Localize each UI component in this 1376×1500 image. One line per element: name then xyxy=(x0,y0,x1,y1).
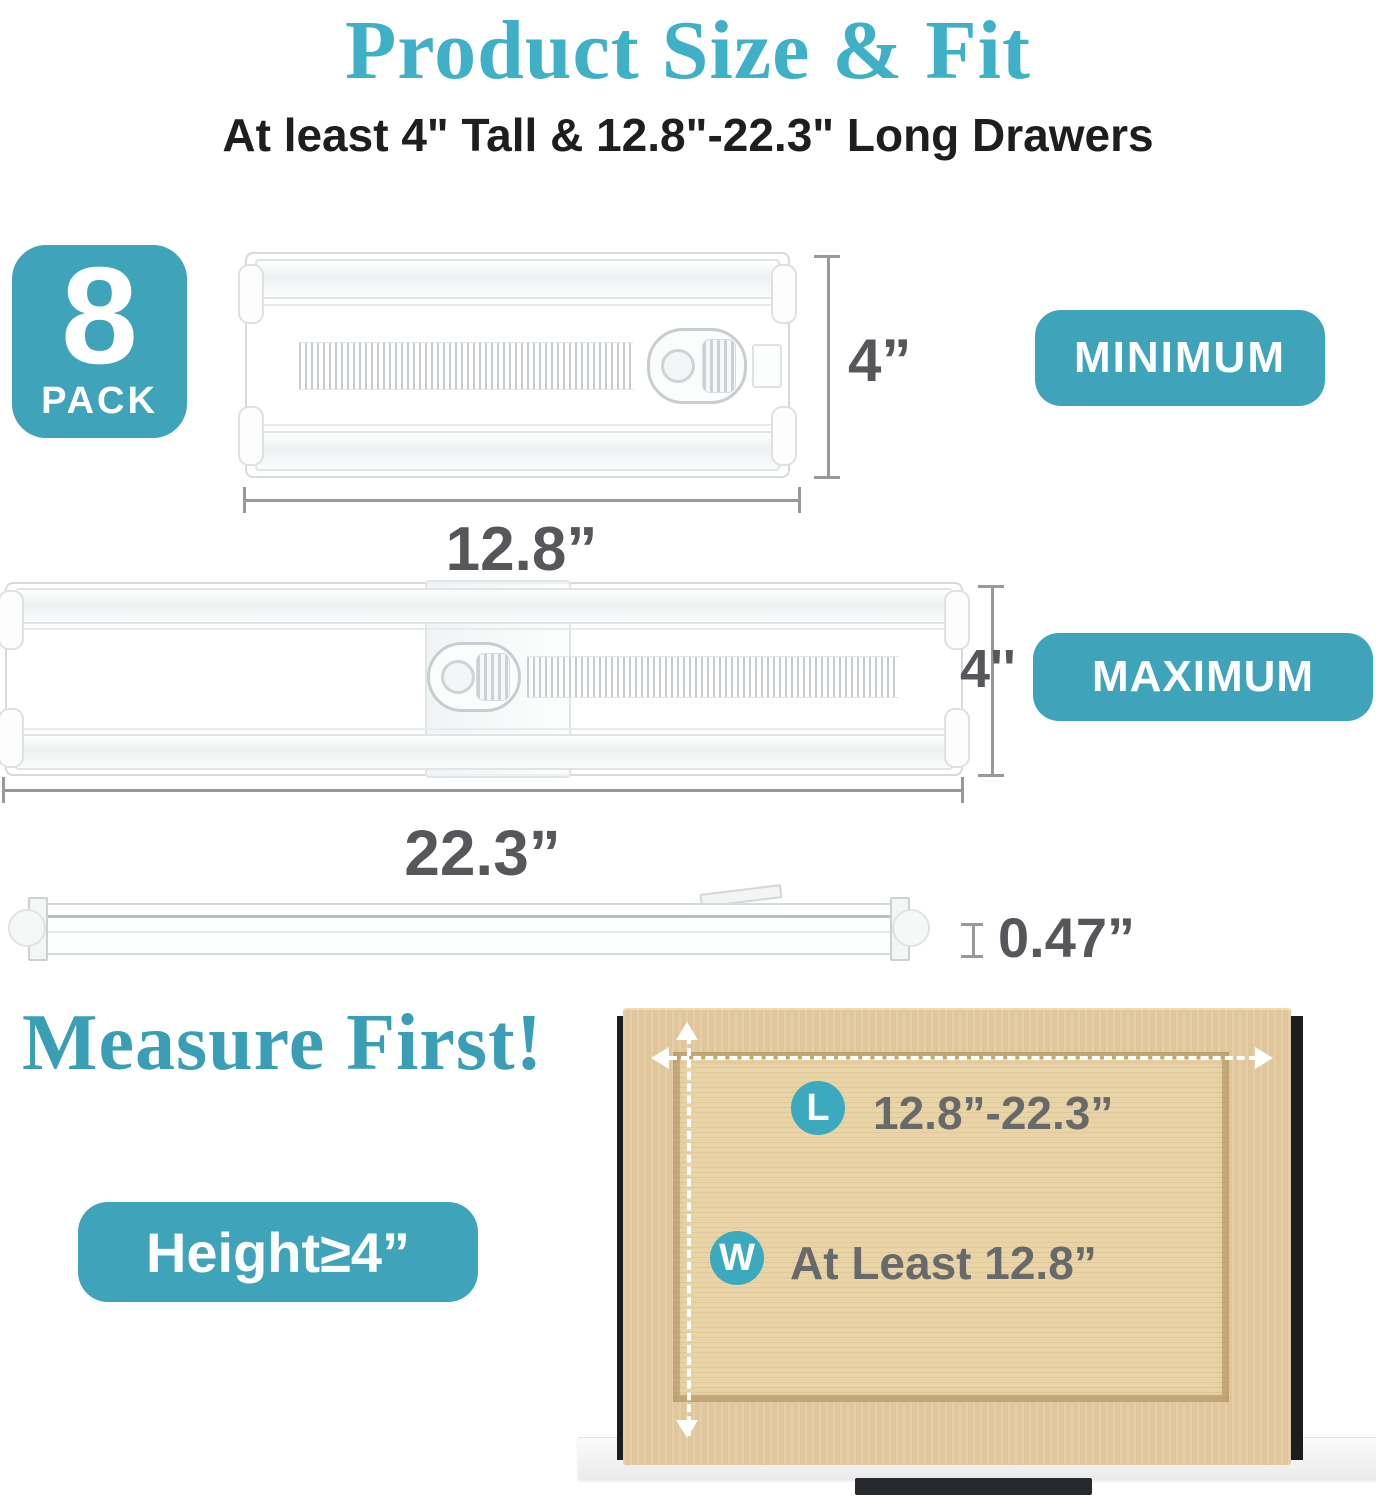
dimension-line-width-min xyxy=(243,499,800,502)
profile-right-cap xyxy=(892,909,930,947)
pack-label: PACK xyxy=(41,380,158,423)
dimension-line-thickness xyxy=(972,924,975,956)
lock-knob xyxy=(661,349,695,383)
divider-ratchet-strip xyxy=(527,656,899,698)
divider-line xyxy=(17,728,951,730)
width-measure-arrow xyxy=(687,1036,691,1436)
dimension-tick xyxy=(978,585,1004,588)
divider-end-cap xyxy=(944,708,970,768)
divider-top-rail xyxy=(255,259,780,299)
dimension-line-height-min xyxy=(827,256,830,477)
divider-bottom-rail xyxy=(255,431,780,471)
minimum-badge: MINIMUM xyxy=(1035,310,1325,406)
arrow-left-icon xyxy=(651,1047,669,1069)
arrow-down-icon xyxy=(676,1420,698,1438)
thickness-label: 0.47” xyxy=(998,905,1135,970)
dimension-tick xyxy=(961,923,983,926)
profile-soft-line xyxy=(40,931,898,933)
height-max-label: 4'' xyxy=(960,638,1016,700)
lock-knob xyxy=(441,660,475,694)
dimension-tick xyxy=(2,777,5,803)
profile-edge-line xyxy=(40,915,898,918)
width-min-label: 12.8” xyxy=(243,514,800,585)
divider-collapsed-illustration xyxy=(245,252,790,478)
lock-grip xyxy=(476,653,510,701)
dimension-tick xyxy=(243,487,246,513)
divider-profile-illustration xyxy=(10,897,928,959)
profile-left-cap xyxy=(8,909,46,947)
divider-lock xyxy=(647,328,747,404)
pack-count-badge: 8 PACK xyxy=(12,245,187,438)
divider-ratchet-strip xyxy=(299,342,634,390)
drawer-slide-right xyxy=(1290,1016,1303,1460)
divider-end-cap xyxy=(0,708,24,768)
arrow-up-icon xyxy=(676,1022,698,1040)
divider-end-cap xyxy=(0,590,24,650)
dimension-tick xyxy=(814,476,840,479)
dimension-tick xyxy=(814,255,840,258)
divider-tab xyxy=(752,344,782,388)
maximum-badge: MAXIMUM xyxy=(1033,633,1373,721)
width-max-label: 22.3” xyxy=(2,816,963,890)
dimension-tick xyxy=(961,777,964,803)
height-requirement-badge: Height≥4” xyxy=(78,1202,478,1302)
divider-line xyxy=(257,304,778,306)
divider-line xyxy=(257,424,778,426)
divider-lock xyxy=(427,642,521,712)
drawer-illustration: L 12.8”-22.3” W At Least 12.8” xyxy=(617,1008,1303,1478)
divider-end-cap xyxy=(771,406,797,466)
length-measure-arrow xyxy=(669,1056,1269,1060)
drawer-handle xyxy=(855,1478,1092,1495)
profile-body xyxy=(36,903,902,955)
width-value-label: At Least 12.8” xyxy=(790,1236,1097,1290)
length-key-badge: L xyxy=(791,1081,845,1135)
lock-grip xyxy=(702,339,736,393)
length-value-label: 12.8”-22.3” xyxy=(873,1086,1113,1140)
page-subtitle: At least 4" Tall & 12.8"-22.3" Long Draw… xyxy=(0,108,1376,162)
pack-count: 8 xyxy=(61,260,138,373)
arrow-right-icon xyxy=(1255,1047,1273,1069)
measure-first-heading: Measure First! xyxy=(22,998,622,1089)
divider-end-cap xyxy=(771,264,797,324)
divider-end-cap xyxy=(238,406,264,466)
dimension-tick xyxy=(961,955,983,958)
dimension-line-width-max xyxy=(2,789,963,792)
infographic-canvas: Product Size & Fit At least 4" Tall & 12… xyxy=(0,0,1376,1500)
divider-line xyxy=(17,628,951,630)
divider-bottom-rail xyxy=(15,734,953,770)
width-key-badge: W xyxy=(710,1231,764,1285)
height-min-label: 4” xyxy=(848,326,911,395)
divider-end-cap xyxy=(238,264,264,324)
page-title: Product Size & Fit xyxy=(0,2,1376,99)
dimension-tick xyxy=(798,487,801,513)
divider-top-rail xyxy=(15,588,953,624)
dimension-tick xyxy=(978,774,1004,777)
divider-extended-illustration xyxy=(5,582,963,776)
